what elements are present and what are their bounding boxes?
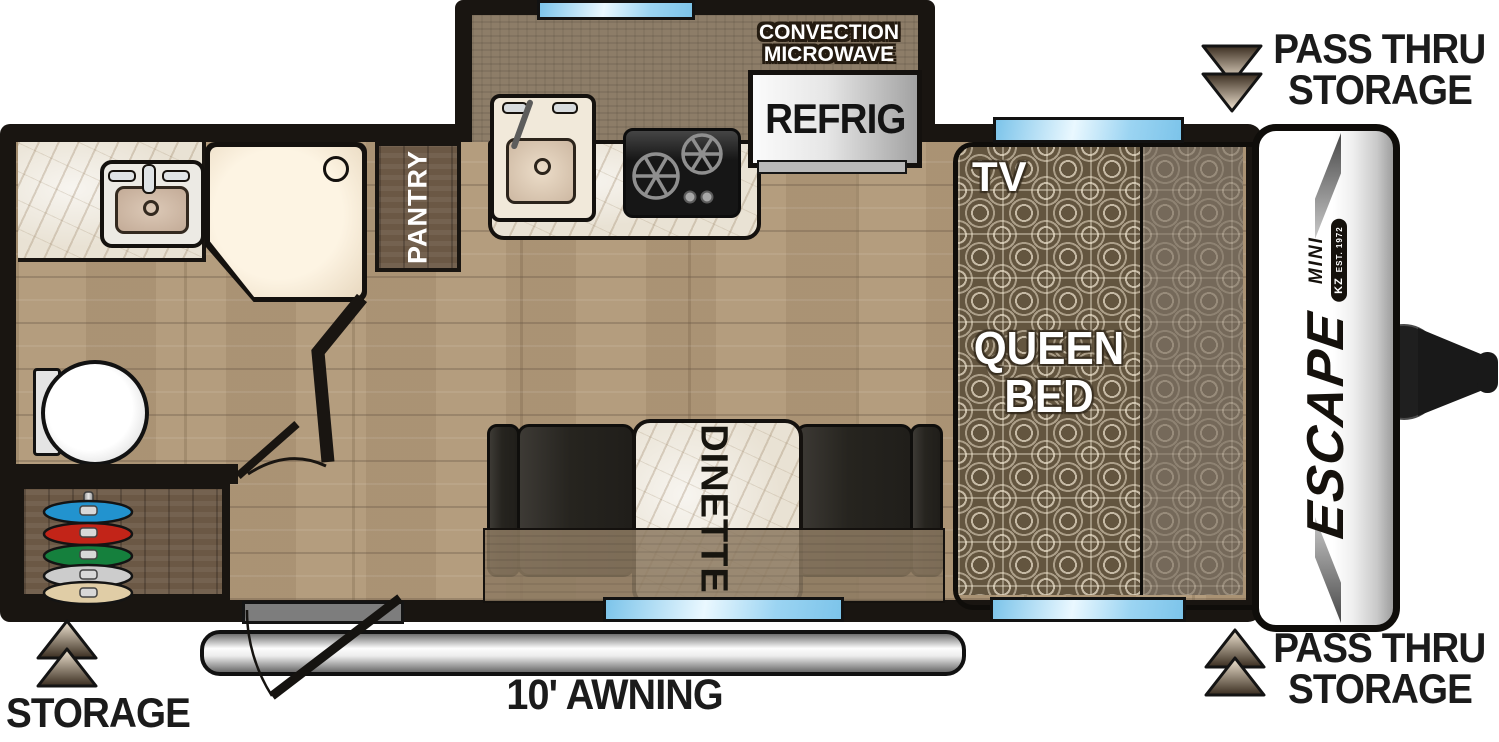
pass-thru-storage-label-bottom: PASS THRU STORAGE [1262, 627, 1497, 709]
rear-storage-text: STORAGE [6, 692, 190, 733]
floorplan-canvas: PANTRY CONVECTION MICROWAVE REFRIG DINET… [0, 0, 1499, 742]
rear-storage-label: STORAGE [0, 692, 200, 733]
up-arrows-icon [38, 621, 96, 686]
up-arrows-icon [1206, 630, 1264, 695]
down-arrows-icon [1203, 46, 1261, 111]
stove-burners-icon [634, 135, 721, 203]
bathroom-door-leaf-icon [238, 424, 297, 476]
awning-text: 10' AWNING [507, 674, 723, 716]
pass-thru-storage-label-top: PASS THRU STORAGE [1262, 28, 1497, 110]
pass-thru-bottom-line1: PASS THRU [1273, 627, 1485, 668]
pass-thru-bottom-line2: STORAGE [1288, 668, 1472, 709]
bathroom-walls [16, 298, 362, 484]
entry-door-swing-icon [247, 598, 400, 696]
awning-label: 10' AWNING [415, 674, 815, 716]
pass-thru-top-line1: PASS THRU [1273, 28, 1485, 69]
disc-rack-icon [44, 492, 132, 604]
pass-thru-top-line2: STORAGE [1288, 69, 1472, 110]
